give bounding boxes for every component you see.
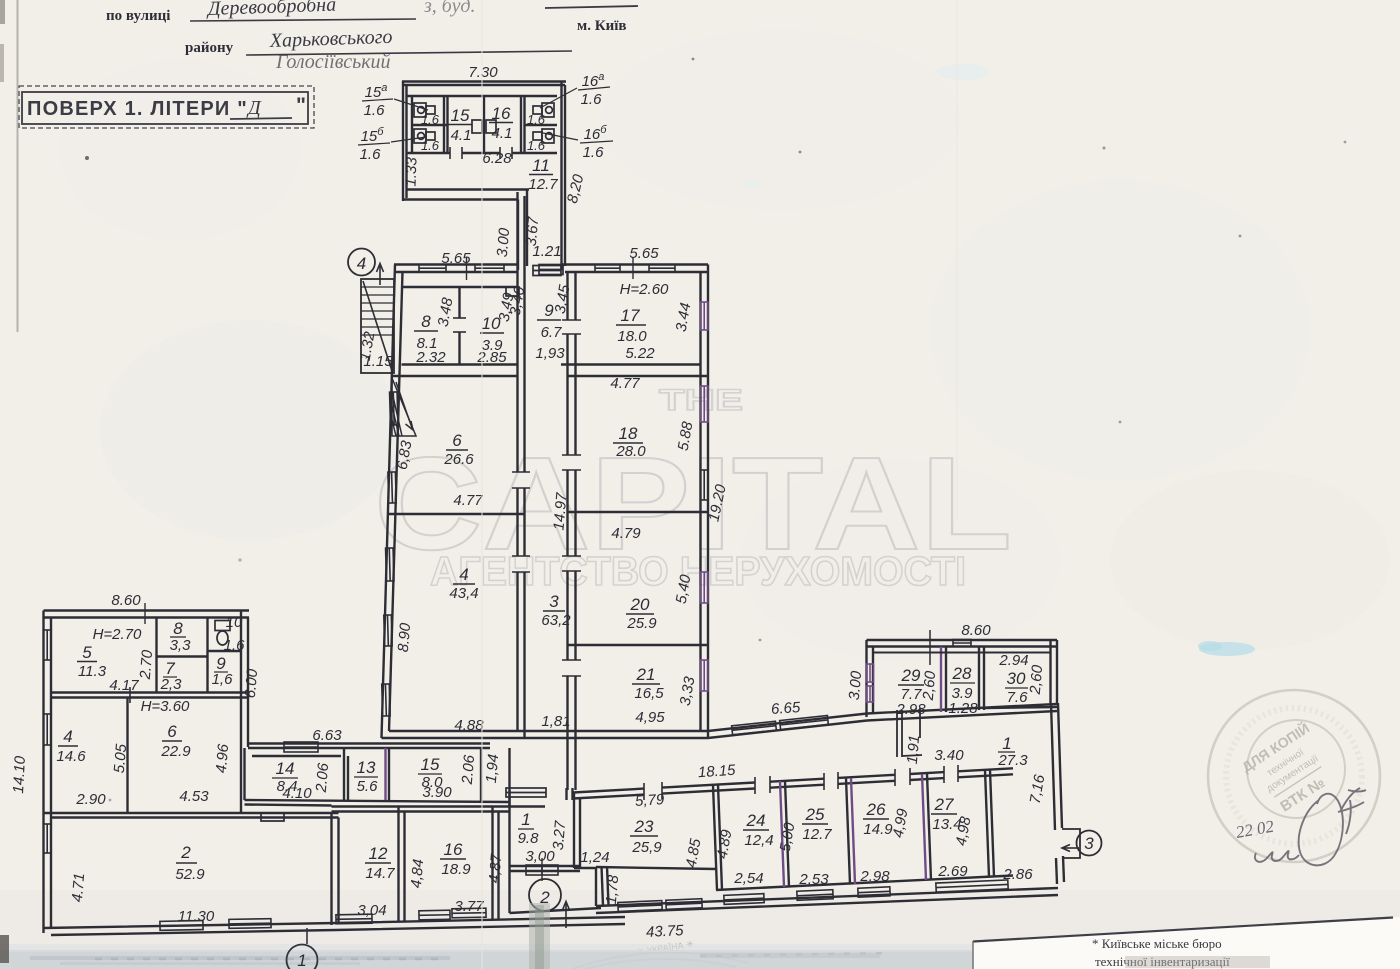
svg-text:Д: Д — [246, 97, 262, 119]
svg-text:6: 6 — [167, 722, 177, 741]
svg-text:43.75: 43.75 — [646, 922, 685, 941]
svg-text:12: 12 — [369, 844, 388, 863]
svg-text:6.65: 6.65 — [771, 699, 802, 718]
svg-text:1,24: 1,24 — [580, 849, 609, 866]
svg-text:6: 6 — [452, 431, 462, 450]
svg-text:4: 4 — [63, 727, 72, 746]
svg-text:6.63: 6.63 — [312, 727, 342, 744]
svg-text:18.15: 18.15 — [697, 762, 736, 782]
svg-text:1.21: 1.21 — [532, 243, 561, 260]
svg-text:2.69: 2.69 — [937, 863, 968, 880]
svg-text:4.1: 4.1 — [492, 125, 513, 142]
svg-text:4.96: 4.96 — [213, 743, 233, 774]
svg-text:Н=2.60: Н=2.60 — [620, 281, 669, 298]
svg-text:11.3: 11.3 — [78, 663, 107, 680]
svg-text:3,00: 3,00 — [525, 848, 555, 865]
svg-text:1,91: 1,91 — [904, 734, 923, 765]
svg-text:1.6: 1.6 — [527, 112, 546, 127]
svg-text:14.97: 14.97 — [550, 492, 570, 532]
svg-text:3,3: 3,3 — [170, 637, 192, 654]
svg-text:2.98: 2.98 — [859, 868, 890, 885]
svg-text:3.27: 3.27 — [550, 820, 570, 851]
svg-text:1,6: 1,6 — [212, 671, 234, 688]
svg-text:2.90: 2.90 — [75, 791, 106, 808]
svg-text:5,79: 5,79 — [635, 791, 666, 810]
svg-text:5: 5 — [82, 643, 92, 662]
svg-text:25: 25 — [805, 805, 825, 824]
svg-text:12.7: 12.7 — [528, 176, 558, 193]
svg-text:з, буд.: з, буд. — [423, 0, 476, 17]
svg-text:1.6: 1.6 — [360, 146, 382, 163]
svg-text:4.17: 4.17 — [109, 677, 139, 694]
svg-text:4.1: 4.1 — [451, 127, 472, 144]
svg-text:3.00: 3.00 — [846, 670, 866, 701]
svg-text:7.30: 7.30 — [468, 64, 498, 81]
svg-text:1.15: 1.15 — [363, 353, 393, 370]
svg-text:3,04: 3,04 — [357, 902, 386, 919]
svg-text:5.65: 5.65 — [629, 245, 659, 262]
svg-text:1.6: 1.6 — [421, 112, 440, 127]
svg-text:4,95: 4,95 — [635, 709, 665, 726]
svg-text:Н=3.60: Н=3.60 — [141, 698, 190, 715]
svg-text:4.71: 4.71 — [69, 872, 88, 903]
svg-text:4.77: 4.77 — [453, 492, 483, 509]
svg-text:3.90: 3.90 — [422, 784, 452, 801]
svg-text:4.10: 4.10 — [282, 785, 312, 802]
svg-text:8.60: 8.60 — [961, 622, 991, 639]
svg-text:16: 16 — [444, 840, 463, 859]
svg-text:3.77: 3.77 — [454, 898, 484, 915]
svg-text:1.6: 1.6 — [527, 138, 546, 153]
svg-text:3.40: 3.40 — [934, 747, 964, 764]
svg-text:2.86: 2.86 — [1002, 866, 1033, 883]
svg-text:5.22: 5.22 — [625, 345, 655, 362]
svg-text:15: 15 — [451, 106, 470, 125]
svg-text:26: 26 — [866, 800, 886, 819]
svg-text:* Київське міське бюро: * Київське міське бюро — [1092, 936, 1222, 951]
svg-text:28: 28 — [952, 664, 972, 683]
svg-text:2,3: 2,3 — [160, 676, 183, 693]
svg-text:6.7: 6.7 — [541, 324, 563, 341]
svg-text:23: 23 — [634, 817, 654, 836]
svg-text:району: району — [185, 40, 234, 56]
svg-text:25,9: 25,9 — [631, 839, 662, 856]
svg-text:2,53: 2,53 — [798, 871, 829, 888]
svg-text:11.30: 11.30 — [178, 908, 215, 925]
svg-text:6.28: 6.28 — [482, 150, 512, 167]
svg-text:5.6: 5.6 — [357, 778, 379, 795]
svg-text:2.32: 2.32 — [415, 349, 446, 366]
svg-text:4: 4 — [459, 565, 468, 584]
svg-text:1,93: 1,93 — [535, 345, 565, 362]
svg-text:18.0: 18.0 — [617, 328, 647, 345]
svg-text:14.7: 14.7 — [365, 865, 395, 882]
svg-text:3.00: 3.00 — [494, 227, 514, 258]
svg-text:2.06: 2.06 — [313, 762, 333, 794]
svg-text:14.6: 14.6 — [56, 748, 86, 765]
svg-text:8.90: 8.90 — [395, 622, 415, 653]
svg-text:21: 21 — [636, 665, 656, 684]
svg-text:1.6: 1.6 — [583, 144, 605, 161]
svg-text:20: 20 — [630, 595, 650, 614]
svg-text:1: 1 — [1002, 734, 1011, 753]
svg-text:Н=2.70: Н=2.70 — [93, 626, 142, 643]
svg-text:7.6: 7.6 — [1007, 689, 1029, 706]
svg-text:АГЕНТСТВО НЕРУХОМОСТІ: АГЕНТСТВО НЕРУХОМОСТІ — [430, 548, 966, 594]
svg-text:1,6: 1,6 — [224, 637, 246, 654]
svg-text:": " — [296, 94, 308, 117]
svg-text:8: 8 — [173, 619, 183, 638]
svg-text:2,60: 2,60 — [920, 670, 940, 702]
svg-text:4.53: 4.53 — [179, 788, 209, 805]
svg-text:11: 11 — [532, 156, 550, 175]
svg-text:18: 18 — [619, 424, 638, 443]
svg-text:13: 13 — [357, 758, 376, 777]
svg-text:30: 30 — [1007, 669, 1026, 688]
svg-text:1.33: 1.33 — [402, 156, 420, 186]
svg-text:16: 16 — [492, 104, 511, 123]
svg-text:2.06: 2.06 — [459, 754, 479, 786]
svg-text:43,4: 43,4 — [449, 585, 478, 602]
svg-text:6.00: 6.00 — [242, 668, 262, 699]
svg-text:52.9: 52.9 — [175, 866, 205, 883]
svg-text:1.6: 1.6 — [421, 138, 440, 153]
svg-text:18.9: 18.9 — [441, 861, 471, 878]
svg-text:4.79: 4.79 — [611, 525, 641, 542]
svg-text:2: 2 — [180, 843, 191, 862]
svg-text:4.88: 4.88 — [454, 717, 484, 734]
svg-text:4,84: 4,84 — [408, 858, 427, 889]
svg-text:2.98: 2.98 — [895, 701, 926, 718]
svg-text:12,4: 12,4 — [744, 832, 773, 849]
svg-text:1,78: 1,78 — [603, 874, 623, 905]
svg-text:25.9: 25.9 — [626, 615, 657, 632]
svg-text:2.94: 2.94 — [998, 652, 1028, 669]
svg-text:по вулиці: по вулиці — [106, 8, 170, 24]
svg-text:1,94: 1,94 — [483, 753, 502, 784]
svg-text:4: 4 — [357, 254, 366, 273]
svg-text:3: 3 — [1084, 834, 1094, 853]
svg-text:63,2: 63,2 — [541, 612, 571, 629]
svg-text:2,54: 2,54 — [733, 870, 763, 887]
svg-text:3: 3 — [549, 592, 559, 611]
svg-text:27.3: 27.3 — [997, 752, 1028, 769]
svg-text:4,87: 4,87 — [486, 853, 506, 884]
svg-text:1.6: 1.6 — [364, 102, 386, 119]
svg-text:5.65: 5.65 — [441, 250, 471, 267]
svg-text:22.9: 22.9 — [160, 743, 191, 760]
svg-text:17: 17 — [621, 306, 640, 325]
svg-text:12.7: 12.7 — [802, 826, 832, 843]
svg-text:29: 29 — [901, 666, 921, 685]
svg-text:1: 1 — [297, 951, 306, 969]
svg-text:1: 1 — [521, 810, 530, 829]
svg-text:14.10: 14.10 — [10, 755, 29, 794]
svg-text:2.70: 2.70 — [137, 649, 157, 681]
svg-text:14: 14 — [276, 759, 295, 778]
svg-text:10: 10 — [226, 614, 243, 631]
svg-text:ПОВЕРХ 1. ЛІТЕРИ ": ПОВЕРХ 1. ЛІТЕРИ " — [27, 98, 248, 120]
svg-text:15: 15 — [421, 755, 440, 774]
svg-text:1,81: 1,81 — [541, 713, 570, 730]
svg-text:26.6: 26.6 — [443, 451, 474, 468]
svg-text:8: 8 — [421, 312, 431, 331]
svg-text:14.9: 14.9 — [863, 821, 893, 838]
svg-text:8.60: 8.60 — [111, 592, 141, 609]
svg-text:2,60: 2,60 — [1027, 664, 1047, 696]
svg-text:4.77: 4.77 — [610, 375, 640, 392]
svg-text:1.28: 1.28 — [948, 700, 978, 717]
svg-text:9.8: 9.8 — [518, 830, 540, 847]
svg-text:Голосіївський: Голосіївський — [275, 51, 391, 73]
svg-text:24: 24 — [746, 811, 766, 830]
svg-text:16,5: 16,5 — [634, 685, 664, 702]
svg-text:27: 27 — [934, 795, 954, 814]
svg-text:м. Київ: м. Київ — [577, 18, 627, 34]
svg-text:28.0: 28.0 — [615, 443, 646, 460]
svg-text:Харьковського: Харьковського — [268, 26, 392, 52]
svg-text:1.6: 1.6 — [581, 91, 603, 108]
svg-text:5.05: 5.05 — [111, 743, 131, 774]
